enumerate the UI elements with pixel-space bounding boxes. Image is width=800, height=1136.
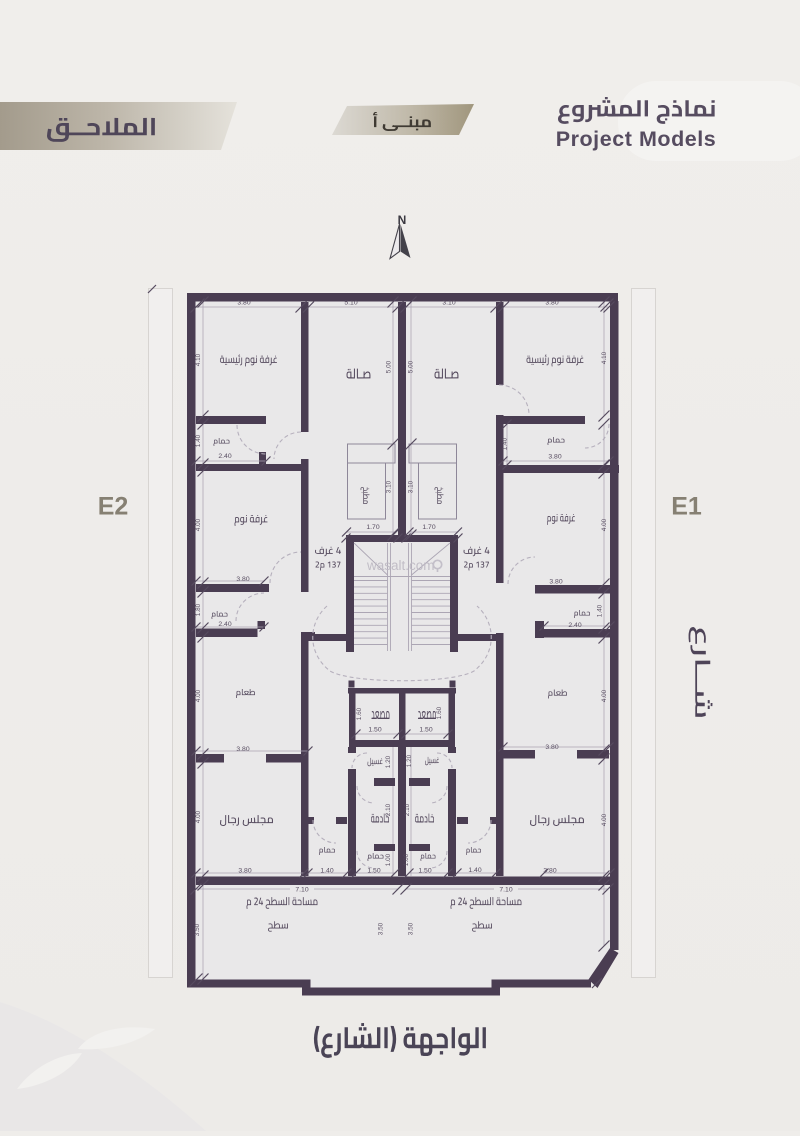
- svg-text:1.50: 1.50: [418, 868, 431, 875]
- svg-text:4.10: 4.10: [601, 351, 608, 364]
- svg-text:3.80: 3.80: [549, 579, 562, 586]
- svg-text:4.00: 4.00: [601, 518, 608, 531]
- svg-text:1.70: 1.70: [366, 524, 379, 531]
- svg-text:2.10: 2.10: [404, 803, 411, 816]
- svg-text:2.10: 2.10: [385, 803, 392, 816]
- svg-text:1.40: 1.40: [502, 437, 509, 450]
- svg-text:4.00: 4.00: [601, 689, 608, 702]
- svg-text:3.80: 3.80: [548, 454, 561, 461]
- svg-text:1.40: 1.40: [195, 434, 202, 447]
- svg-text:1.50: 1.50: [419, 727, 432, 734]
- svg-text:4.00: 4.00: [601, 813, 608, 826]
- svg-text:3.10: 3.10: [386, 480, 393, 493]
- svg-text:1.70: 1.70: [422, 524, 435, 531]
- svg-text:4.10: 4.10: [195, 353, 202, 366]
- svg-text:1.50: 1.50: [367, 868, 380, 875]
- svg-text:7.10: 7.10: [295, 887, 308, 894]
- svg-text:E2: E2: [98, 493, 129, 521]
- svg-text:1.50: 1.50: [368, 727, 381, 734]
- svg-text:7.10: 7.10: [499, 887, 512, 894]
- svg-text:3.80: 3.80: [545, 744, 558, 751]
- svg-text:wasalt.com: wasalt.com: [366, 558, 435, 573]
- svg-text:3.80: 3.80: [545, 300, 558, 307]
- svg-text:1.40: 1.40: [597, 604, 604, 617]
- svg-text:2.40: 2.40: [218, 621, 231, 628]
- svg-text:E1: E1: [671, 493, 702, 521]
- svg-text:1.20: 1.20: [406, 754, 413, 767]
- svg-text:Project Models: Project Models: [556, 127, 717, 151]
- svg-text:3.80: 3.80: [236, 576, 249, 583]
- svg-text:5.00: 5.00: [386, 360, 393, 373]
- svg-text:5.00: 5.00: [408, 360, 415, 373]
- svg-text:4.00: 4.00: [195, 810, 202, 823]
- svg-text:3.80: 3.80: [543, 868, 556, 875]
- svg-text:3.50: 3.50: [408, 922, 415, 935]
- svg-text:1.00: 1.00: [403, 853, 410, 866]
- svg-text:1.60: 1.60: [436, 706, 443, 719]
- svg-text:3.50: 3.50: [194, 923, 201, 936]
- svg-text:2.40: 2.40: [568, 622, 581, 629]
- svg-text:1.00: 1.00: [385, 853, 392, 866]
- svg-text:3.80: 3.80: [236, 746, 249, 753]
- svg-text:1.40: 1.40: [468, 867, 481, 874]
- svg-text:1.60: 1.60: [356, 707, 363, 720]
- svg-text:1.40: 1.40: [320, 868, 333, 875]
- svg-text:3.80: 3.80: [237, 300, 250, 307]
- svg-text:3.10: 3.10: [408, 480, 415, 493]
- svg-text:2.40: 2.40: [218, 453, 231, 460]
- svg-text:3.10: 3.10: [442, 300, 455, 307]
- svg-text:4.00: 4.00: [195, 689, 202, 702]
- svg-text:1.80: 1.80: [195, 603, 202, 616]
- svg-text:1.20: 1.20: [385, 755, 392, 768]
- svg-text:3.50: 3.50: [378, 922, 385, 935]
- svg-text:5.10: 5.10: [344, 300, 357, 307]
- svg-text:3.80: 3.80: [238, 868, 251, 875]
- svg-text:4.00: 4.00: [195, 518, 202, 531]
